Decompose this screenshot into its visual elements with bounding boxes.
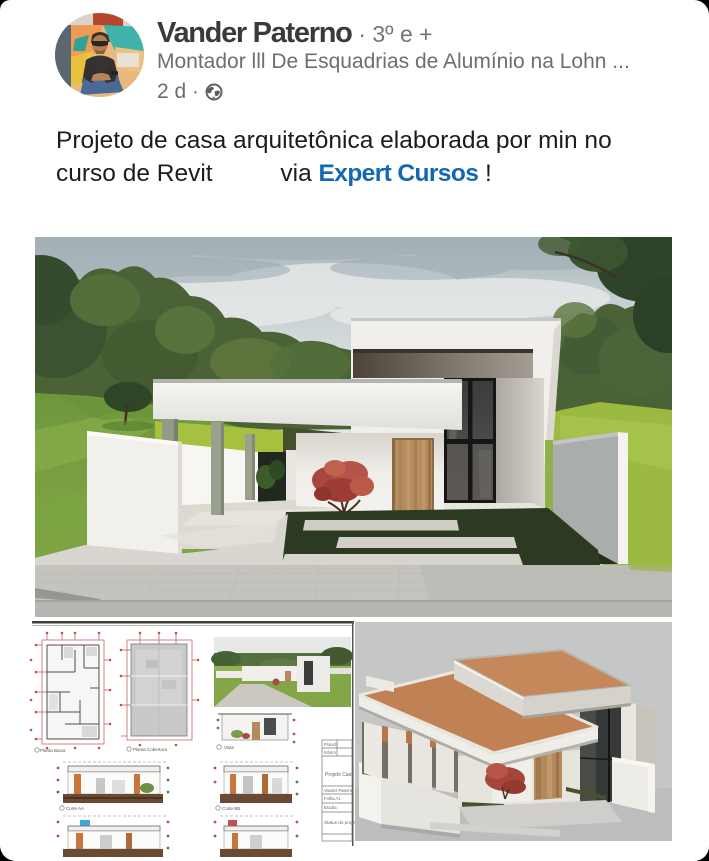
svg-text:Vander Paterno: Vander Paterno bbox=[324, 788, 354, 793]
svg-text:Corte AA: Corte AA bbox=[66, 806, 84, 811]
svg-text:Pranch: Pranch bbox=[324, 742, 338, 747]
svg-text:Vista: Vista bbox=[224, 745, 234, 750]
svg-text:Projeto Casa: Projeto Casa bbox=[325, 772, 354, 778]
svg-text:Escala: Escala bbox=[324, 805, 337, 810]
svg-text:Inform: Inform bbox=[324, 750, 336, 755]
svg-text:Folha A1: Folha A1 bbox=[324, 796, 341, 801]
svg-text:Status do projeto: Status do projeto bbox=[324, 820, 359, 825]
svg-text:Planta Cobertura: Planta Cobertura bbox=[133, 747, 168, 752]
svg-text:Corte BB: Corte BB bbox=[222, 806, 240, 811]
svg-text:Planta Baixa: Planta Baixa bbox=[40, 748, 66, 753]
